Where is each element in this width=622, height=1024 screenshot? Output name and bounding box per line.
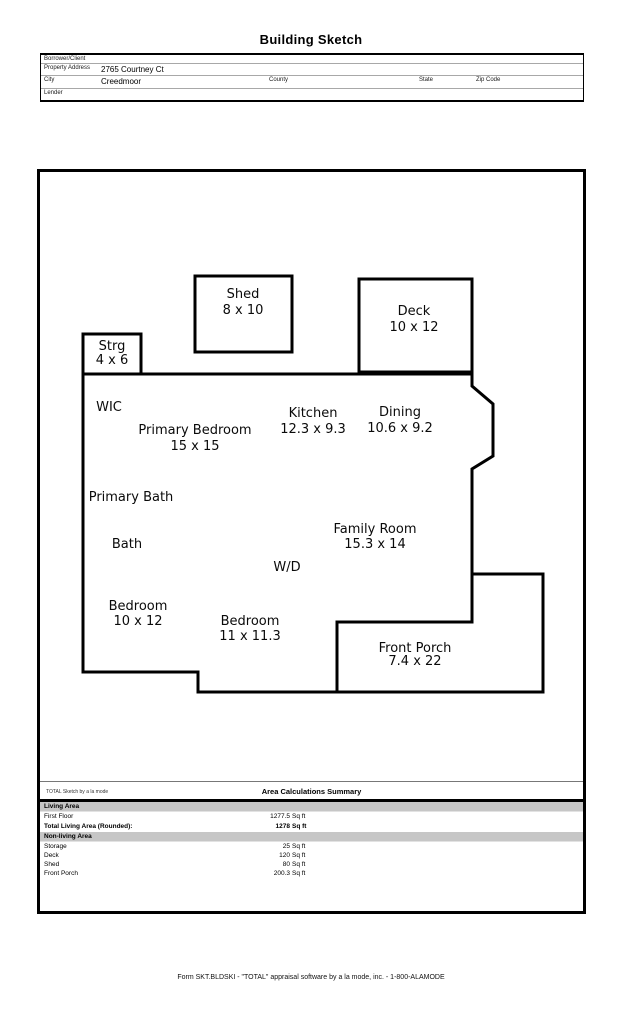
- area-row-shed: Shed 80Sq ft: [40, 860, 583, 869]
- room-name: Bedroom: [109, 599, 168, 614]
- area-row-first-floor: First Floor 1277.5Sq ft: [40, 812, 583, 822]
- area-summary-header: TOTAL Sketch by a la mode Area Calculati…: [40, 782, 583, 799]
- area-row-total-living: Total Living Area (Rounded): 1278Sq ft: [40, 822, 583, 832]
- area-row-storage: Storage 25Sq ft: [40, 842, 583, 851]
- row-value: 80Sq ft: [256, 861, 336, 868]
- area-summary-title: Area Calculations Summary: [40, 787, 583, 796]
- row-unit: Sq ft: [292, 823, 306, 830]
- room-label-front-porch: Front Porch 7.4 x 22: [379, 642, 452, 668]
- lender-label: Lender: [44, 90, 63, 96]
- row-number: 200.3: [256, 870, 290, 877]
- row-number: 80: [256, 861, 290, 868]
- room-dims: 11 x 11.3: [219, 629, 280, 644]
- room-dims: 15 x 15: [138, 439, 251, 455]
- row-label: Total Living Area (Rounded):: [44, 823, 132, 830]
- header-row-city: City Creedmoor County State Zip Code: [41, 76, 583, 89]
- area-calculations-summary: TOTAL Sketch by a la mode Area Calculati…: [40, 781, 583, 878]
- form-footer-text: Form SKT.BLDSKI - "TOTAL" appraisal soft…: [0, 974, 622, 981]
- room-name: Primary Bath: [89, 490, 174, 506]
- row-label: Deck: [44, 852, 59, 859]
- room-label-strg: Strg 4 x 6: [96, 340, 129, 368]
- property-address-value: 2765 Courtney Ct: [101, 65, 164, 74]
- row-value: 1277.5Sq ft: [256, 813, 336, 820]
- header-row-lender: Lender: [41, 89, 583, 100]
- room-label-bedroom-2: Bedroom 11 x 11.3: [219, 614, 280, 644]
- room-label-wic: WIC: [96, 400, 122, 416]
- page-title: Building Sketch: [0, 32, 622, 47]
- nonliving-area-band: Non-living Area: [40, 832, 583, 842]
- building-sketch-page: Building Sketch Borrower/Client Property…: [0, 0, 622, 1024]
- room-name: Primary Bedroom: [138, 423, 251, 439]
- row-value: 25Sq ft: [256, 843, 336, 850]
- room-label-washer-dryer: W/D: [273, 560, 300, 576]
- room-label-primary-bedroom: Primary Bedroom 15 x 15: [138, 423, 251, 455]
- state-label: State: [419, 77, 433, 83]
- room-name: Dining: [367, 405, 433, 421]
- property-header-table: Borrower/Client Property Address 2765 Co…: [40, 53, 584, 102]
- row-value: 120Sq ft: [256, 852, 336, 859]
- row-unit: Sq ft: [292, 852, 305, 859]
- row-label: First Floor: [44, 813, 73, 820]
- room-dims: 12.3 x 9.3: [280, 422, 346, 438]
- room-name: Bath: [112, 537, 142, 553]
- row-value: 200.3Sq ft: [256, 870, 336, 877]
- room-dims: 7.4 x 22: [379, 655, 452, 668]
- room-label-family-room: Family Room 15.3 x 14: [334, 522, 417, 552]
- room-dims: 10 x 12: [109, 614, 168, 629]
- room-label-primary-bath: Primary Bath: [89, 490, 174, 506]
- row-unit: Sq ft: [292, 870, 305, 877]
- row-label: Shed: [44, 861, 59, 868]
- room-name: Bedroom: [219, 614, 280, 629]
- row-number: 25: [256, 843, 290, 850]
- room-label-kitchen: Kitchen 12.3 x 9.3: [280, 406, 346, 438]
- room-name: WIC: [96, 400, 122, 416]
- room-label-shed: Shed 8 x 10: [223, 287, 264, 319]
- row-unit: Sq ft: [292, 861, 305, 868]
- city-value: Creedmoor: [101, 77, 141, 86]
- room-name: W/D: [273, 560, 300, 576]
- room-dims: 10 x 12: [389, 320, 438, 336]
- header-row-borrower: Borrower/Client: [41, 55, 583, 64]
- row-number: 1277.5: [256, 813, 290, 820]
- room-name: Deck: [389, 304, 438, 320]
- row-unit: Sq ft: [292, 843, 305, 850]
- zip-code-label: Zip Code: [476, 77, 500, 83]
- area-row-front-porch: Front Porch 200.3Sq ft: [40, 869, 583, 878]
- county-label: County: [269, 77, 288, 83]
- row-number: 1278: [256, 823, 290, 830]
- area-row-deck: Deck 120Sq ft: [40, 851, 583, 860]
- property-address-label: Property Address: [44, 65, 90, 71]
- room-name: Kitchen: [280, 406, 346, 422]
- room-label-bedroom-1: Bedroom 10 x 12: [109, 599, 168, 629]
- city-label: City: [44, 77, 54, 83]
- room-name: Strg: [96, 340, 129, 354]
- row-label: Front Porch: [44, 870, 78, 877]
- room-label-dining: Dining 10.6 x 9.2: [367, 405, 433, 437]
- room-dims: 8 x 10: [223, 303, 264, 319]
- living-area-band: Living Area: [40, 802, 583, 812]
- row-number: 120: [256, 852, 290, 859]
- header-row-address: Property Address 2765 Courtney Ct: [41, 64, 583, 76]
- row-label: Storage: [44, 843, 67, 850]
- porch-corner-walls: [337, 574, 472, 692]
- room-dims: 15.3 x 14: [334, 537, 417, 552]
- row-unit: Sq ft: [292, 813, 305, 820]
- room-name: Family Room: [334, 522, 417, 537]
- room-dims: 10.6 x 9.2: [367, 421, 433, 437]
- borrower-label: Borrower/Client: [44, 56, 85, 62]
- room-dims: 4 x 6: [96, 354, 129, 368]
- room-label-bath: Bath: [112, 537, 142, 553]
- room-label-deck: Deck 10 x 12: [389, 304, 438, 336]
- room-name: Shed: [223, 287, 264, 303]
- row-value: 1278Sq ft: [256, 823, 336, 830]
